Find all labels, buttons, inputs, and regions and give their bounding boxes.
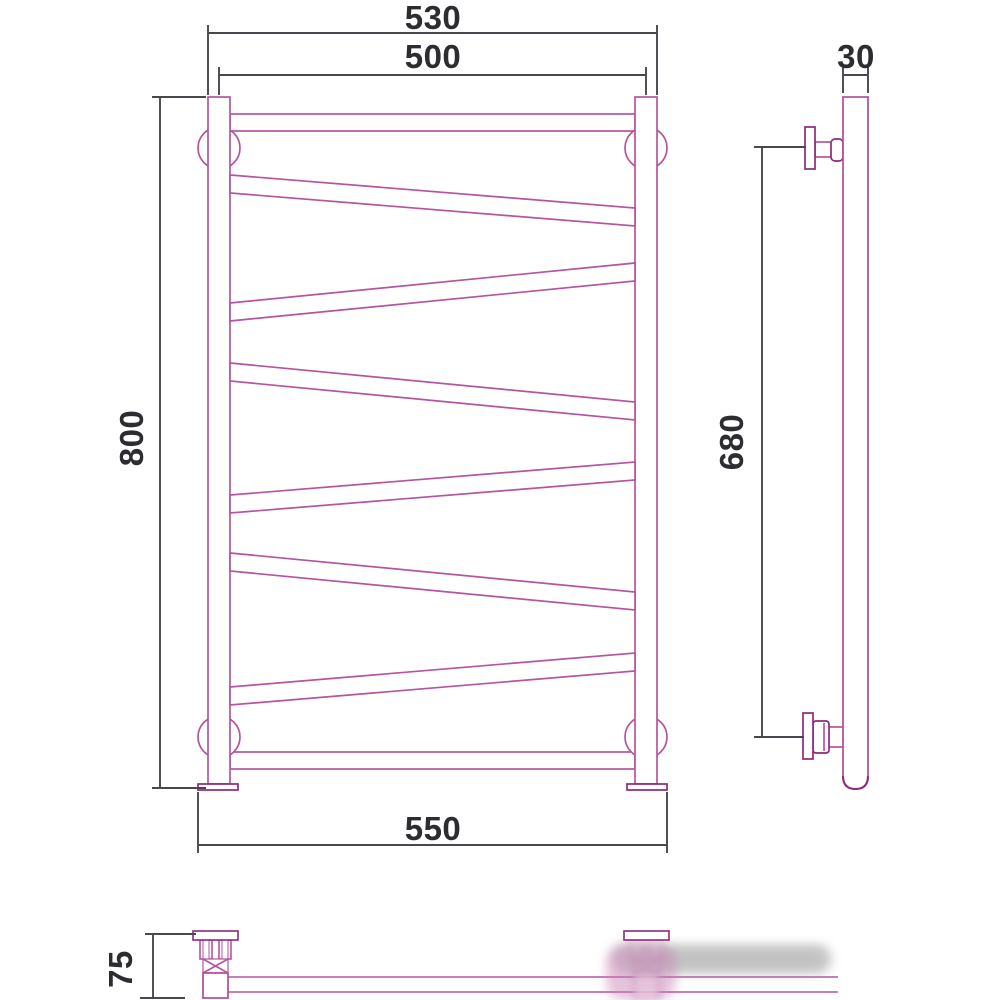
- rung-2: [230, 263, 635, 321]
- bottom-view-left-wall-plate: [193, 931, 238, 940]
- side-vertical-tube: [843, 97, 868, 789]
- left-post: [208, 97, 230, 784]
- bottom-view-right-wall-plate: [624, 931, 669, 940]
- bottom-view-left-stem-inner: [203, 940, 209, 959]
- rung-6: [230, 653, 635, 705]
- right-post: [635, 97, 657, 784]
- front-view: [198, 97, 667, 790]
- side-top-bracket-collar: [831, 139, 843, 161]
- rung-5: [230, 553, 635, 610]
- side-bottom-bracket-flange: [803, 713, 813, 759]
- side-view: [803, 97, 868, 789]
- dimension-75: [140, 933, 196, 999]
- dimension-800: [152, 97, 206, 788]
- bottom-horizontal-tube: [230, 752, 635, 769]
- dimension-label-680: 680: [713, 414, 750, 471]
- rung-3: [230, 363, 635, 420]
- dimension-680: [754, 147, 806, 737]
- side-bottom-bracket-nut: [813, 721, 829, 753]
- dimension-label-75: 75: [102, 950, 139, 988]
- rung-4: [230, 462, 635, 513]
- towel-rail-dimensional-drawing: 530 500 800 550 30 680 75: [0, 0, 1000, 1000]
- left-foot-plate: [198, 784, 238, 790]
- rung-1: [230, 175, 635, 226]
- side-top-bracket-flange: [805, 127, 815, 169]
- right-foot-plate: [627, 784, 667, 790]
- top-horizontal-tube: [230, 114, 635, 131]
- bottom-view-left-stem-inner: [222, 940, 228, 959]
- dimension-label-530: 530: [405, 0, 462, 36]
- bottom-view-left-post-section: [203, 973, 228, 998]
- dimension-label-550: 550: [405, 810, 462, 847]
- dimension-label-800: 800: [113, 410, 150, 467]
- dimension-label-500: 500: [405, 38, 462, 75]
- technical-drawing-page: 530 500 800 550 30 680 75: [0, 0, 1000, 1000]
- dimension-label-30: 30: [837, 38, 875, 75]
